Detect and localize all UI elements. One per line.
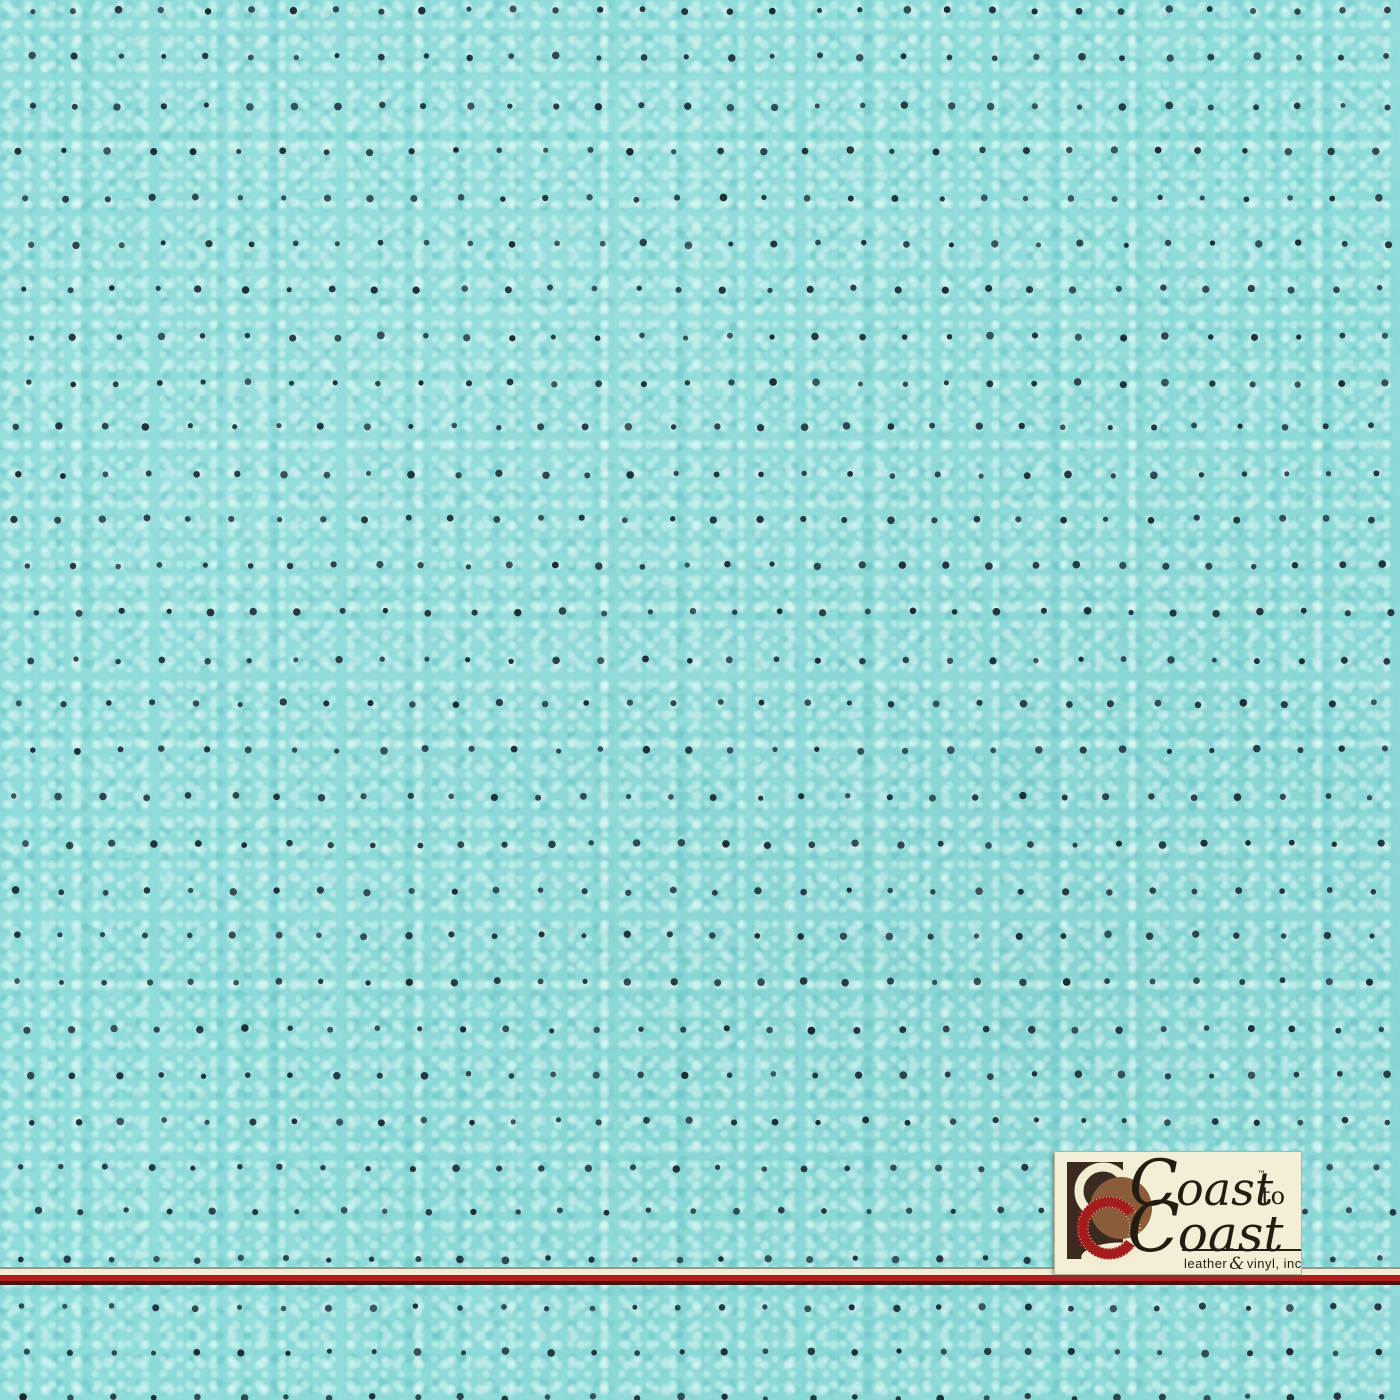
logo-rule [1182,1249,1301,1251]
coast-to-coast-logo: Coast ™ to Coast leather&vinyl, inc [1054,1151,1302,1275]
logo-tagline: leather&vinyl, inc [1184,1253,1302,1273]
tagline-leather: leather [1184,1256,1227,1271]
trademark-symbol: ™ [1257,1170,1266,1180]
leather-swatch-photo: Coast ™ to Coast leather&vinyl, inc [0,0,1400,1400]
divider-dark-red-band [0,1281,1400,1285]
tagline-vinyl-inc: vinyl, inc [1247,1256,1302,1271]
tagline-ampersand: & [1229,1254,1245,1274]
